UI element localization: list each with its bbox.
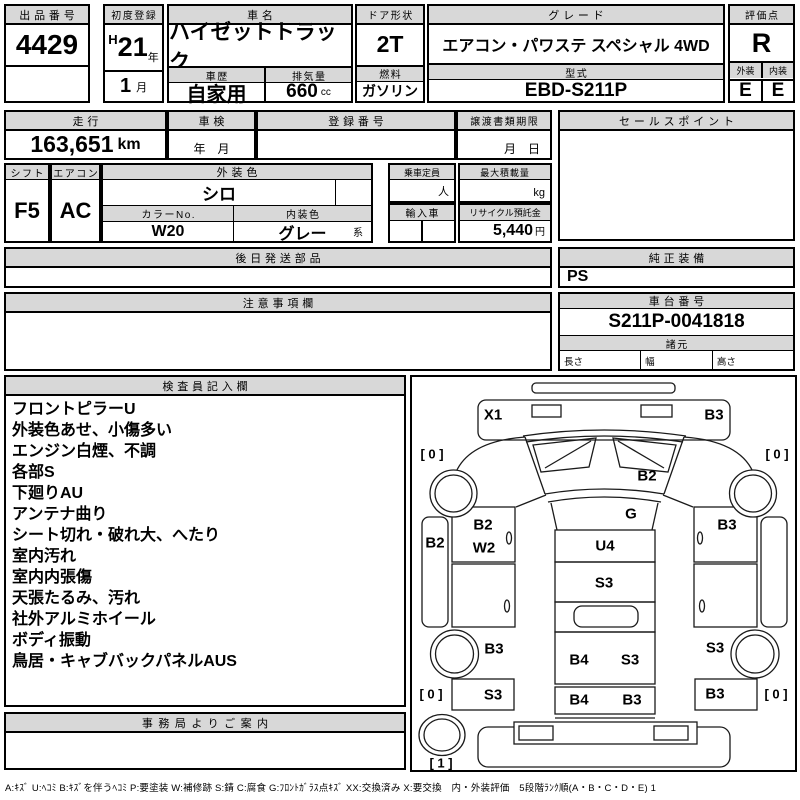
specs-label: 諸元 [560, 336, 793, 351]
inspection-note: 鳥居・キャブバックパネルAUS [12, 651, 404, 672]
aircon-label: エアコン [52, 165, 99, 180]
mark-rear-right: S3 [706, 640, 724, 657]
year-unit: 年 [148, 49, 159, 65]
color-subheaders-row: カラーNo. 内装色 [103, 206, 371, 222]
notice-block: 注意事項欄 [4, 292, 552, 371]
color-no-value: W20 [103, 222, 233, 241]
capacity-label: 乗車定員 [390, 165, 454, 180]
ext-int-values-row: E E [730, 81, 793, 101]
inspection-note: 天張たるみ、汚れ [12, 588, 404, 609]
spec-height-label: 高さ [712, 351, 793, 369]
wheels [419, 470, 779, 756]
recycle-block: リサイクル預託金 5,440 円 [458, 203, 552, 243]
int-color-suffix: 系 [353, 224, 363, 239]
transfer-docs-value: 月 日 [458, 131, 550, 158]
transfer-docs-label: 譲渡書類期限 [458, 112, 550, 131]
shift-block: シフト F5 [4, 163, 50, 243]
capacity-unit: 人 [390, 180, 454, 201]
sales-point-label: セールスポイント [560, 112, 793, 131]
oem-equip-block: 純正装備 PS [558, 247, 795, 288]
car-name-value: ハイゼットトラック [169, 25, 351, 68]
inspection-note: 室内内張傷 [12, 567, 404, 588]
recycle-value-wrap: 5,440 円 [460, 221, 550, 241]
mark-windshield: B2 [637, 468, 656, 485]
sales-point-block: セールスポイント [558, 110, 795, 241]
specs-cells: 長さ 幅 高さ [560, 351, 793, 369]
model-code-value: EBD-S211P [429, 80, 723, 101]
import-car-cells [390, 221, 454, 241]
first-registration-label: 初度登録 [105, 6, 162, 25]
grade-value: エアコン・パワステ スペシャル 4WD [429, 25, 723, 65]
fuel-label: 燃料 [357, 67, 423, 82]
year-value: 21 [118, 32, 148, 63]
lot-number-value: 4429 [6, 25, 88, 67]
import-car-block: 輸入車 [388, 203, 456, 243]
inspection-note: エンジン白煙、不調 [12, 441, 404, 462]
mark-bed-front: S3 [595, 575, 613, 592]
auction-sheet: 出品番号 4429 初度登録 H 21 年 1 月 車名 ハイゼットトラック 車… [0, 0, 800, 800]
shaken-value: 年 月 [169, 131, 254, 158]
fuel-value: ガソリン [357, 82, 423, 101]
recycle-label: リサイクル預託金 [460, 205, 550, 221]
ext-color-label: 外装色 [103, 165, 371, 180]
transfer-docs-block: 譲渡書類期限 月 日 [456, 110, 552, 160]
ext-color-value: シロ [103, 180, 335, 205]
import-car-label: 輸入車 [390, 205, 454, 221]
inspection-note: 各部S [12, 462, 404, 483]
first-registration-block: 初度登録 H 21 年 1 月 [103, 4, 164, 103]
mark-front-panel-right: B3 [704, 407, 723, 424]
score-label: 評価点 [730, 6, 793, 25]
mileage-block: 走行 163,651 km [4, 110, 167, 160]
displacement-cell: 排気量 660 cc [264, 68, 351, 101]
sales-point-value [560, 131, 793, 239]
mark-left-door-1: B2 [473, 517, 492, 534]
max-load-label: 最大積載量 [460, 165, 550, 180]
recycle-unit: 円 [535, 223, 545, 238]
mileage-value: 163,651 [30, 131, 113, 158]
model-code-label: 型式 [429, 65, 723, 80]
inspection-notes: フロントピラーU 外装色あせ、小傷多い エンジン白煙、不調 各部S 下廻りAU … [6, 396, 404, 705]
spec-width-label: 幅 [640, 351, 712, 369]
mileage-value-wrap: 163,651 km [6, 131, 165, 158]
mark-tire-rear-right: [ 0 ] [764, 687, 787, 702]
mileage-label: 走行 [6, 112, 165, 131]
mark-left-bed-lower: S3 [484, 687, 502, 704]
chassis-value: S211P-0041818 [560, 309, 793, 336]
mark-bed-mid-2: S3 [621, 652, 639, 669]
inspection-note: シート切れ・破れ大、へたり [12, 525, 404, 546]
displacement-value: 660 [286, 81, 318, 103]
history-displacement-row: 車歴 自家用 排気量 660 cc [169, 68, 351, 101]
office-block: 事務局よりご案内 [4, 712, 406, 770]
ext-color-empty-cell [335, 180, 371, 205]
mark-bed-mid-1: B4 [569, 652, 589, 669]
int-color-value: グレー [278, 220, 326, 244]
door-shape-value: 2T [357, 25, 423, 67]
color-no-label: カラーNo. [103, 206, 233, 221]
month-unit: 月 [136, 79, 147, 95]
score-value: R [730, 25, 793, 63]
inspection-note: 下廻りAU [12, 483, 404, 504]
shaken-label: 車検 [169, 112, 254, 131]
damage-marks: X1 B3 B2 G B2 B2 W2 B3 U4 S3 B3 S3 S3 B3… [419, 407, 788, 771]
history-cell: 車歴 自家用 [169, 68, 264, 101]
first-registration-month: 1 月 [105, 70, 162, 101]
registration-number-block: 登録番号 [256, 110, 456, 160]
later-parts-block: 後日発送部品 [4, 247, 552, 288]
shaken-block: 車検 年 月 [167, 110, 256, 160]
exterior-label: 外装 [730, 63, 761, 78]
inspection-note: フロントピラーU [12, 399, 404, 420]
registration-number-label: 登録番号 [258, 112, 454, 131]
interior-value: E [761, 81, 793, 101]
later-parts-value [6, 268, 550, 286]
lot-number-empty-cell [6, 67, 88, 101]
mark-left-door-2: W2 [473, 540, 496, 557]
later-parts-label: 後日発送部品 [6, 249, 550, 268]
mileage-unit: km [118, 136, 141, 154]
max-load-block: 最大積載量 kg [458, 163, 552, 203]
inspection-note: 外装色あせ、小傷多い [12, 420, 404, 441]
mark-tailgate-2: B3 [622, 692, 641, 709]
notice-value [6, 313, 550, 369]
grade-block: グレード エアコン・パワステ スペシャル 4WD 型式 EBD-S211P [427, 4, 725, 103]
inspection-note: ボディ振動 [12, 630, 404, 651]
door-shape-label: ドア形状 [357, 6, 423, 25]
mark-roof: G [625, 506, 637, 523]
damage-code-legend: A:ｷｽﾞ U:ﾍｺﾐ B:ｷｽﾞを伴うﾍｺﾐ P:要塗装 W:補修跡 S:錆 … [5, 780, 797, 796]
ext-int-labels-row: 外装 内装 [730, 63, 793, 81]
int-color-cell: グレー 系 [233, 222, 371, 241]
mark-right-bed-lower: B3 [705, 686, 724, 703]
mark-left-sill: B2 [425, 535, 444, 552]
color-values-row: W20 グレー 系 [103, 222, 371, 241]
lot-number-block: 出品番号 4429 [4, 4, 90, 103]
mark-tire-front-left: [ 0 ] [420, 447, 443, 462]
mark-front-panel-left: X1 [484, 407, 502, 424]
ext-color-row: シロ [103, 180, 371, 206]
mark-right-door: B3 [717, 517, 736, 534]
mark-tire-rear-left: [ 0 ] [419, 687, 442, 702]
registration-number-value [258, 131, 454, 158]
grade-label: グレード [429, 6, 723, 25]
door-shape-block: ドア形状 2T 燃料 ガソリン [355, 4, 425, 103]
office-value [6, 733, 404, 768]
inspection-note: アンテナ曲り [12, 504, 404, 525]
month-value: 1 [120, 75, 131, 98]
inspection-note: 室内汚れ [12, 546, 404, 567]
import-car-cell-b [421, 221, 454, 241]
inspection-note: 社外アルミホイール [12, 609, 404, 630]
recycle-value: 5,440 [493, 222, 533, 240]
aircon-value: AC [52, 180, 99, 241]
inspection-block: 検査員記入欄 フロントピラーU 外装色あせ、小傷多い エンジン白煙、不調 各部S… [4, 375, 406, 707]
truck-damage-diagram: X1 B3 B2 G B2 B2 W2 B3 U4 S3 B3 S3 S3 B3… [412, 377, 795, 770]
lot-number-label: 出品番号 [6, 6, 88, 25]
chassis-label: 車台番号 [560, 294, 793, 309]
exterior-value: E [730, 81, 761, 101]
mark-rear-left: B3 [484, 641, 503, 658]
displacement-unit: cc [321, 87, 331, 98]
notice-label: 注意事項欄 [6, 294, 550, 313]
displacement-value-wrap: 660 cc [266, 83, 351, 101]
oem-equip-value: PS [560, 268, 793, 286]
first-registration-year: H 21 年 [105, 25, 162, 70]
mark-spare-tire: [ 1 ] [429, 756, 452, 771]
office-label: 事務局よりご案内 [6, 714, 404, 733]
era-letter: H [108, 32, 117, 47]
history-value: 自家用 [169, 83, 264, 101]
max-load-unit: kg [460, 180, 550, 201]
color-block: 外装色 シロ カラーNo. 内装色 W20 グレー 系 [101, 163, 373, 243]
oem-equip-label: 純正装備 [560, 249, 793, 268]
damage-diagram-box: X1 B3 B2 G B2 B2 W2 B3 U4 S3 B3 S3 S3 B3… [410, 375, 797, 772]
mark-cab-floor: U4 [595, 538, 615, 555]
shift-label: シフト [6, 165, 48, 180]
shift-value: F5 [6, 180, 48, 241]
car-name-block: 車名 ハイゼットトラック 車歴 自家用 排気量 660 cc [167, 4, 353, 103]
score-block: 評価点 R 外装 内装 E E [728, 4, 795, 103]
mark-tailgate-1: B4 [569, 692, 589, 709]
chassis-block: 車台番号 S211P-0041818 諸元 長さ 幅 高さ [558, 292, 795, 371]
spec-length-label: 長さ [560, 351, 640, 369]
inspection-label: 検査員記入欄 [6, 377, 404, 396]
import-car-cell-a [390, 221, 421, 241]
mark-tire-front-right: [ 0 ] [765, 447, 788, 462]
capacity-block: 乗車定員 人 [388, 163, 456, 203]
interior-label: 内装 [761, 63, 793, 78]
aircon-block: エアコン AC [50, 163, 101, 243]
